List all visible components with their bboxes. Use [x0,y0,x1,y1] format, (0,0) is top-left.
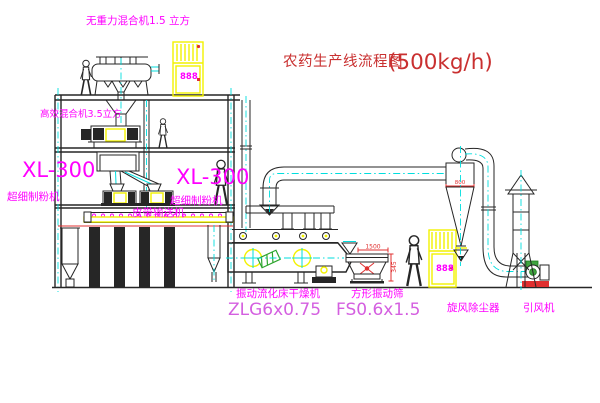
label-mill-right-name: 超细制粉机 [170,194,223,207]
label-dryer-model: ZLG6x0.75 [228,300,321,320]
process-flow-drawing: 888 [0,0,600,403]
control-cabinet-top: 888 [173,42,203,96]
worker-figure [81,60,92,95]
sieve-width-dim: 1500 [365,244,380,251]
label-fan: 引风机 [523,301,555,314]
storage-bin [97,152,139,171]
support-pillars [89,227,175,287]
fluid-bed-dryer [226,206,352,283]
cabinet-display: 888 [436,264,454,274]
sieve-height-dim: 345 [391,261,398,273]
mixer-2f [81,126,142,148]
label-top-mixer: 无重力混合机1.5 立方 [86,14,190,27]
label-cyclone: 旋风除尘器 [447,301,500,314]
cabinet-display: 888 [180,72,198,82]
label-sieve-name: 方形振动筛 [351,287,404,300]
feed-duct-overhead [260,167,452,215]
basement-duct [208,225,220,283]
drawing-title-capacity: (500kg/h) [388,50,493,75]
label-mill-left-model: XL-300 [22,158,95,182]
worker-figure [406,236,422,286]
label-dryer-name: 振动流化床干燥机 [236,287,320,300]
label-belt-conveyor: 皮带输送机 [132,206,185,219]
mill-left [101,184,138,206]
cyclone-separator: 800 [446,146,474,266]
control-cabinet-right: 888 [429,230,456,287]
worker-figure [158,119,167,148]
vibrating-sieve: 1500 345 [342,242,398,284]
label-mill-left-name: 超细制粉机 [7,190,60,203]
label-mixer-2f: 高效混合机3.5立方 [40,108,122,120]
label-sieve-model: FS0.6x1.5 [336,300,420,320]
label-mill-right-model: XL-300 [176,165,249,189]
drawing-title: 农药生产线流程图 [283,53,403,70]
bucket-elevator-boot [60,228,80,287]
